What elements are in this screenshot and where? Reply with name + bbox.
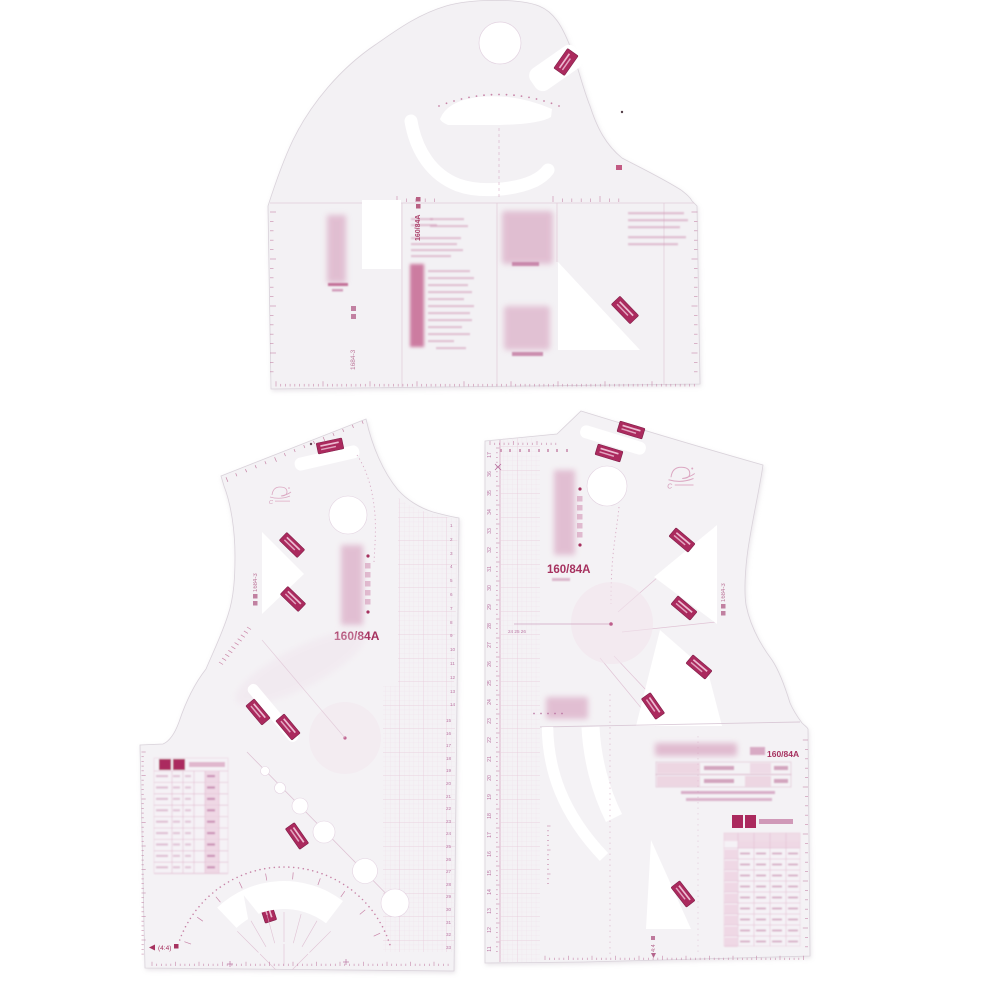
svg-text:20: 20	[446, 781, 452, 786]
svg-text:25: 25	[446, 844, 452, 849]
svg-text:28: 28	[487, 623, 493, 629]
svg-text:(4:4): (4:4)	[158, 945, 171, 952]
svg-text:1684-3: 1684-3	[253, 573, 259, 592]
svg-text:17: 17	[487, 452, 493, 458]
svg-text:13: 13	[487, 908, 493, 914]
svg-text:27: 27	[446, 869, 452, 874]
svg-text:24: 24	[487, 699, 493, 705]
svg-text:34: 34	[487, 509, 493, 515]
svg-text:11: 11	[487, 946, 493, 951]
svg-text:160/84A: 160/84A	[767, 749, 799, 759]
svg-text:11: 11	[450, 661, 455, 666]
svg-text:32: 32	[446, 932, 452, 937]
svg-text:5: 5	[450, 578, 453, 583]
svg-text:29: 29	[446, 894, 452, 899]
svg-text:24: 24	[446, 831, 452, 836]
svg-text:27: 27	[487, 642, 493, 648]
svg-text:22: 22	[487, 737, 493, 743]
svg-text:25: 25	[487, 680, 493, 686]
svg-text:13: 13	[450, 689, 456, 694]
svg-text:12: 12	[487, 927, 493, 933]
svg-text:23: 23	[446, 819, 452, 824]
svg-text:24 25 26: 24 25 26	[508, 629, 526, 634]
svg-text:26: 26	[446, 857, 452, 862]
svg-text:17: 17	[446, 743, 452, 748]
svg-text:4: 4	[450, 564, 453, 569]
svg-text:9: 9	[450, 633, 453, 638]
svg-text:17: 17	[487, 832, 493, 838]
svg-text:23: 23	[487, 718, 493, 724]
svg-text:33: 33	[446, 945, 452, 950]
svg-text:15: 15	[487, 870, 493, 876]
svg-text:19: 19	[487, 794, 493, 800]
svg-text:29: 29	[487, 604, 493, 610]
svg-text:26: 26	[487, 661, 493, 667]
svg-text:22: 22	[446, 806, 452, 811]
svg-text:8: 8	[450, 620, 453, 625]
svg-text:31: 31	[446, 920, 452, 925]
svg-text:10: 10	[450, 647, 456, 652]
svg-text:21: 21	[487, 756, 493, 762]
svg-text:30: 30	[487, 585, 493, 591]
svg-text:20: 20	[487, 775, 493, 781]
svg-text:35: 35	[487, 490, 493, 496]
svg-text:1684-3: 1684-3	[721, 583, 727, 602]
svg-text:1: 1	[450, 523, 453, 528]
svg-text:28: 28	[446, 882, 452, 887]
svg-text:C: C	[269, 500, 273, 506]
svg-text:33: 33	[487, 528, 493, 534]
svg-text:18: 18	[487, 813, 493, 819]
svg-text:16: 16	[487, 851, 493, 857]
svg-text:4:4: 4:4	[651, 944, 657, 952]
svg-text:1684-3: 1684-3	[350, 349, 357, 370]
svg-text:C: C	[667, 484, 672, 491]
svg-text:14: 14	[487, 889, 493, 895]
svg-text:12: 12	[450, 675, 456, 680]
svg-text:36: 36	[487, 471, 493, 477]
svg-text:19: 19	[446, 768, 452, 773]
svg-text:15: 15	[446, 718, 452, 723]
svg-text:14: 14	[450, 702, 456, 707]
svg-text:160/84A: 160/84A	[547, 564, 590, 576]
svg-text:30: 30	[446, 907, 452, 912]
svg-text:32: 32	[487, 547, 493, 553]
svg-text:6: 6	[450, 592, 453, 597]
svg-text:3: 3	[450, 551, 453, 556]
svg-text:160/84A: 160/84A	[415, 215, 422, 241]
svg-text:7: 7	[450, 606, 453, 611]
svg-text:18: 18	[446, 756, 452, 761]
svg-text:31: 31	[487, 566, 493, 572]
svg-text:16: 16	[446, 731, 452, 736]
svg-text:21: 21	[446, 794, 452, 799]
svg-text:2: 2	[450, 537, 453, 542]
